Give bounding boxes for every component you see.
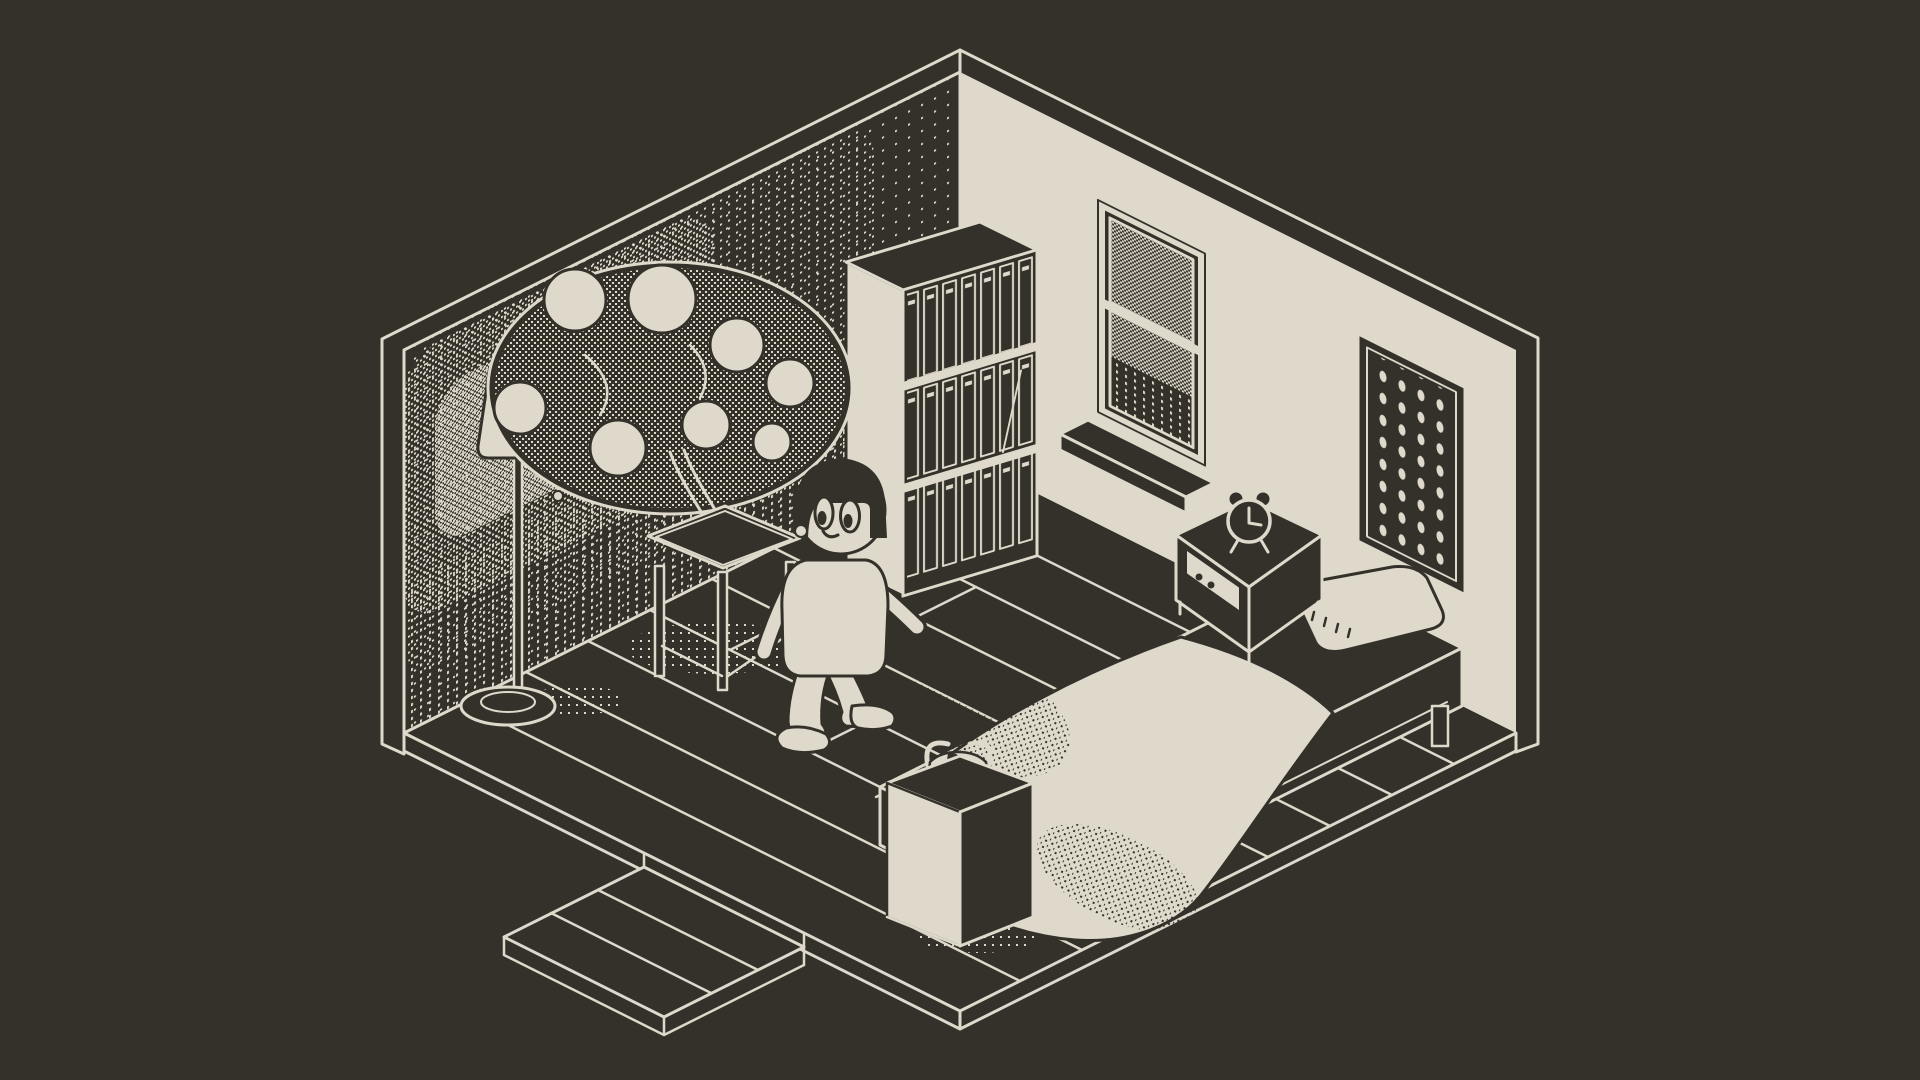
pupil xyxy=(844,514,853,528)
back-shoe xyxy=(851,705,895,730)
scene-canvas: Isometric pixel-art bedroom at night xyxy=(0,0,1920,1080)
character-torso xyxy=(782,560,888,676)
pedestal-right-face xyxy=(960,783,1033,946)
front-shoe xyxy=(777,727,830,753)
pedestal[interactable] xyxy=(887,743,1033,946)
screenshot-root: Isometric pixel-art bedroom at night xyxy=(0,0,1920,1080)
lamp-pole xyxy=(514,458,522,698)
character-ear xyxy=(795,525,807,537)
pupil xyxy=(818,511,827,525)
